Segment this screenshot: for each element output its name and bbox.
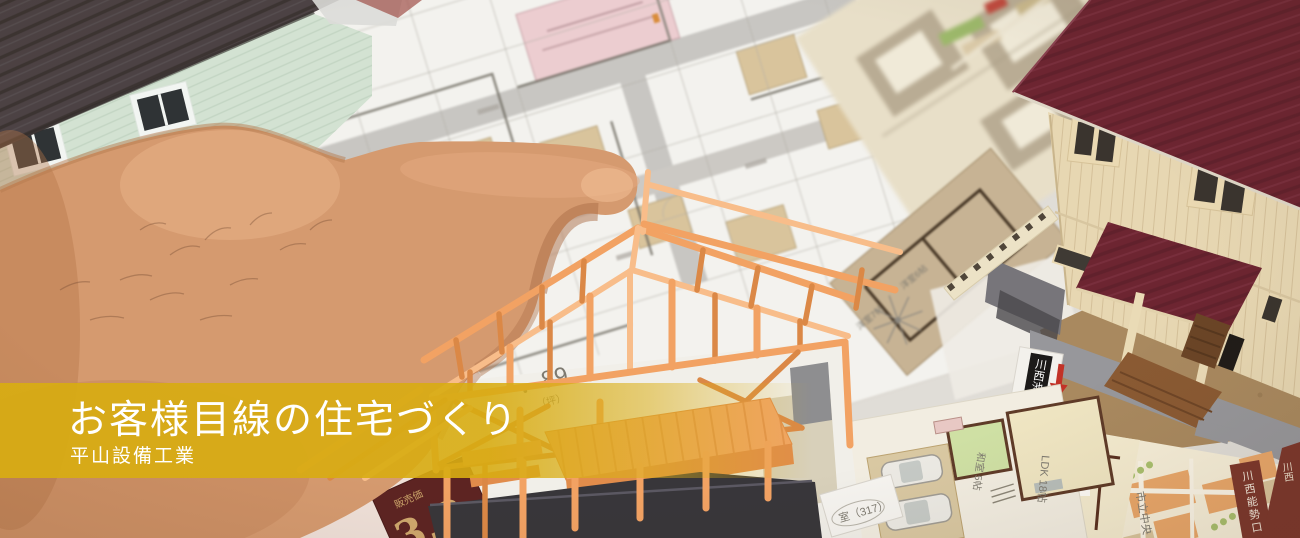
hero-subheading: 平山設備工業 (70, 441, 196, 468)
hero-heading: お客様目線の住宅づくり (68, 389, 519, 445)
hero-banner: お客様目線の住宅づくり 平山設備工業 (0, 383, 812, 478)
hero-photo-banner: 洋室6帖 洋室7帖 (0, 0, 1300, 538)
